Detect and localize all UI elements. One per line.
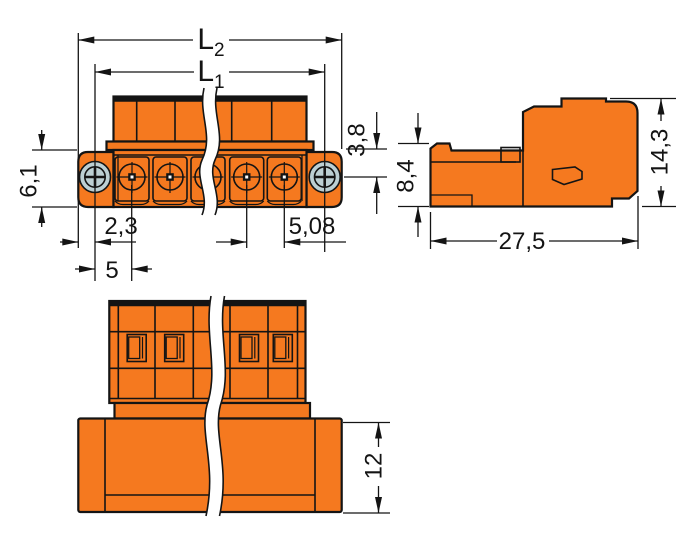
dim-label-12: 12 [361, 453, 388, 480]
dim-label-8-4: 8,4 [393, 159, 420, 192]
dim-label-27-5: 27,5 [499, 228, 546, 255]
dim-label-5-08: 5,08 [289, 213, 336, 240]
dim-label-2-3: 2,3 [104, 213, 137, 240]
dim-edge-to-pin: 2,3 [60, 213, 138, 246]
bottom-view: 12 [78, 296, 390, 516]
side-view: 8,4 14,3 27,5 [393, 99, 677, 256]
dim-pin-pitch: 5,08 [216, 213, 346, 246]
side-profile [431, 99, 638, 207]
dim-front-height: 8,4 [393, 113, 430, 237]
drawing-page: L2 L1 6,1 3,8 [0, 0, 697, 543]
dim-label-14-3: 14,3 [647, 129, 674, 176]
dim-flange-to-pin: 5 [75, 257, 152, 284]
bottom-pole-block [109, 301, 305, 403]
dim-label-3-8: 3,8 [344, 123, 371, 156]
front-view: L2 L1 6,1 3,8 [16, 23, 388, 284]
dim-plug-depth: 12 [343, 423, 390, 514]
dim-flange-height: 6,1 [16, 130, 78, 227]
dim-pin-depth: 3,8 [344, 112, 388, 214]
dim-l1: L1 [95, 55, 325, 93]
technical-drawing-canvas: L2 L1 6,1 3,8 [0, 0, 697, 543]
dim-label-6-1: 6,1 [16, 164, 43, 197]
side-housing [431, 99, 638, 207]
dim-label-5: 5 [105, 257, 118, 284]
